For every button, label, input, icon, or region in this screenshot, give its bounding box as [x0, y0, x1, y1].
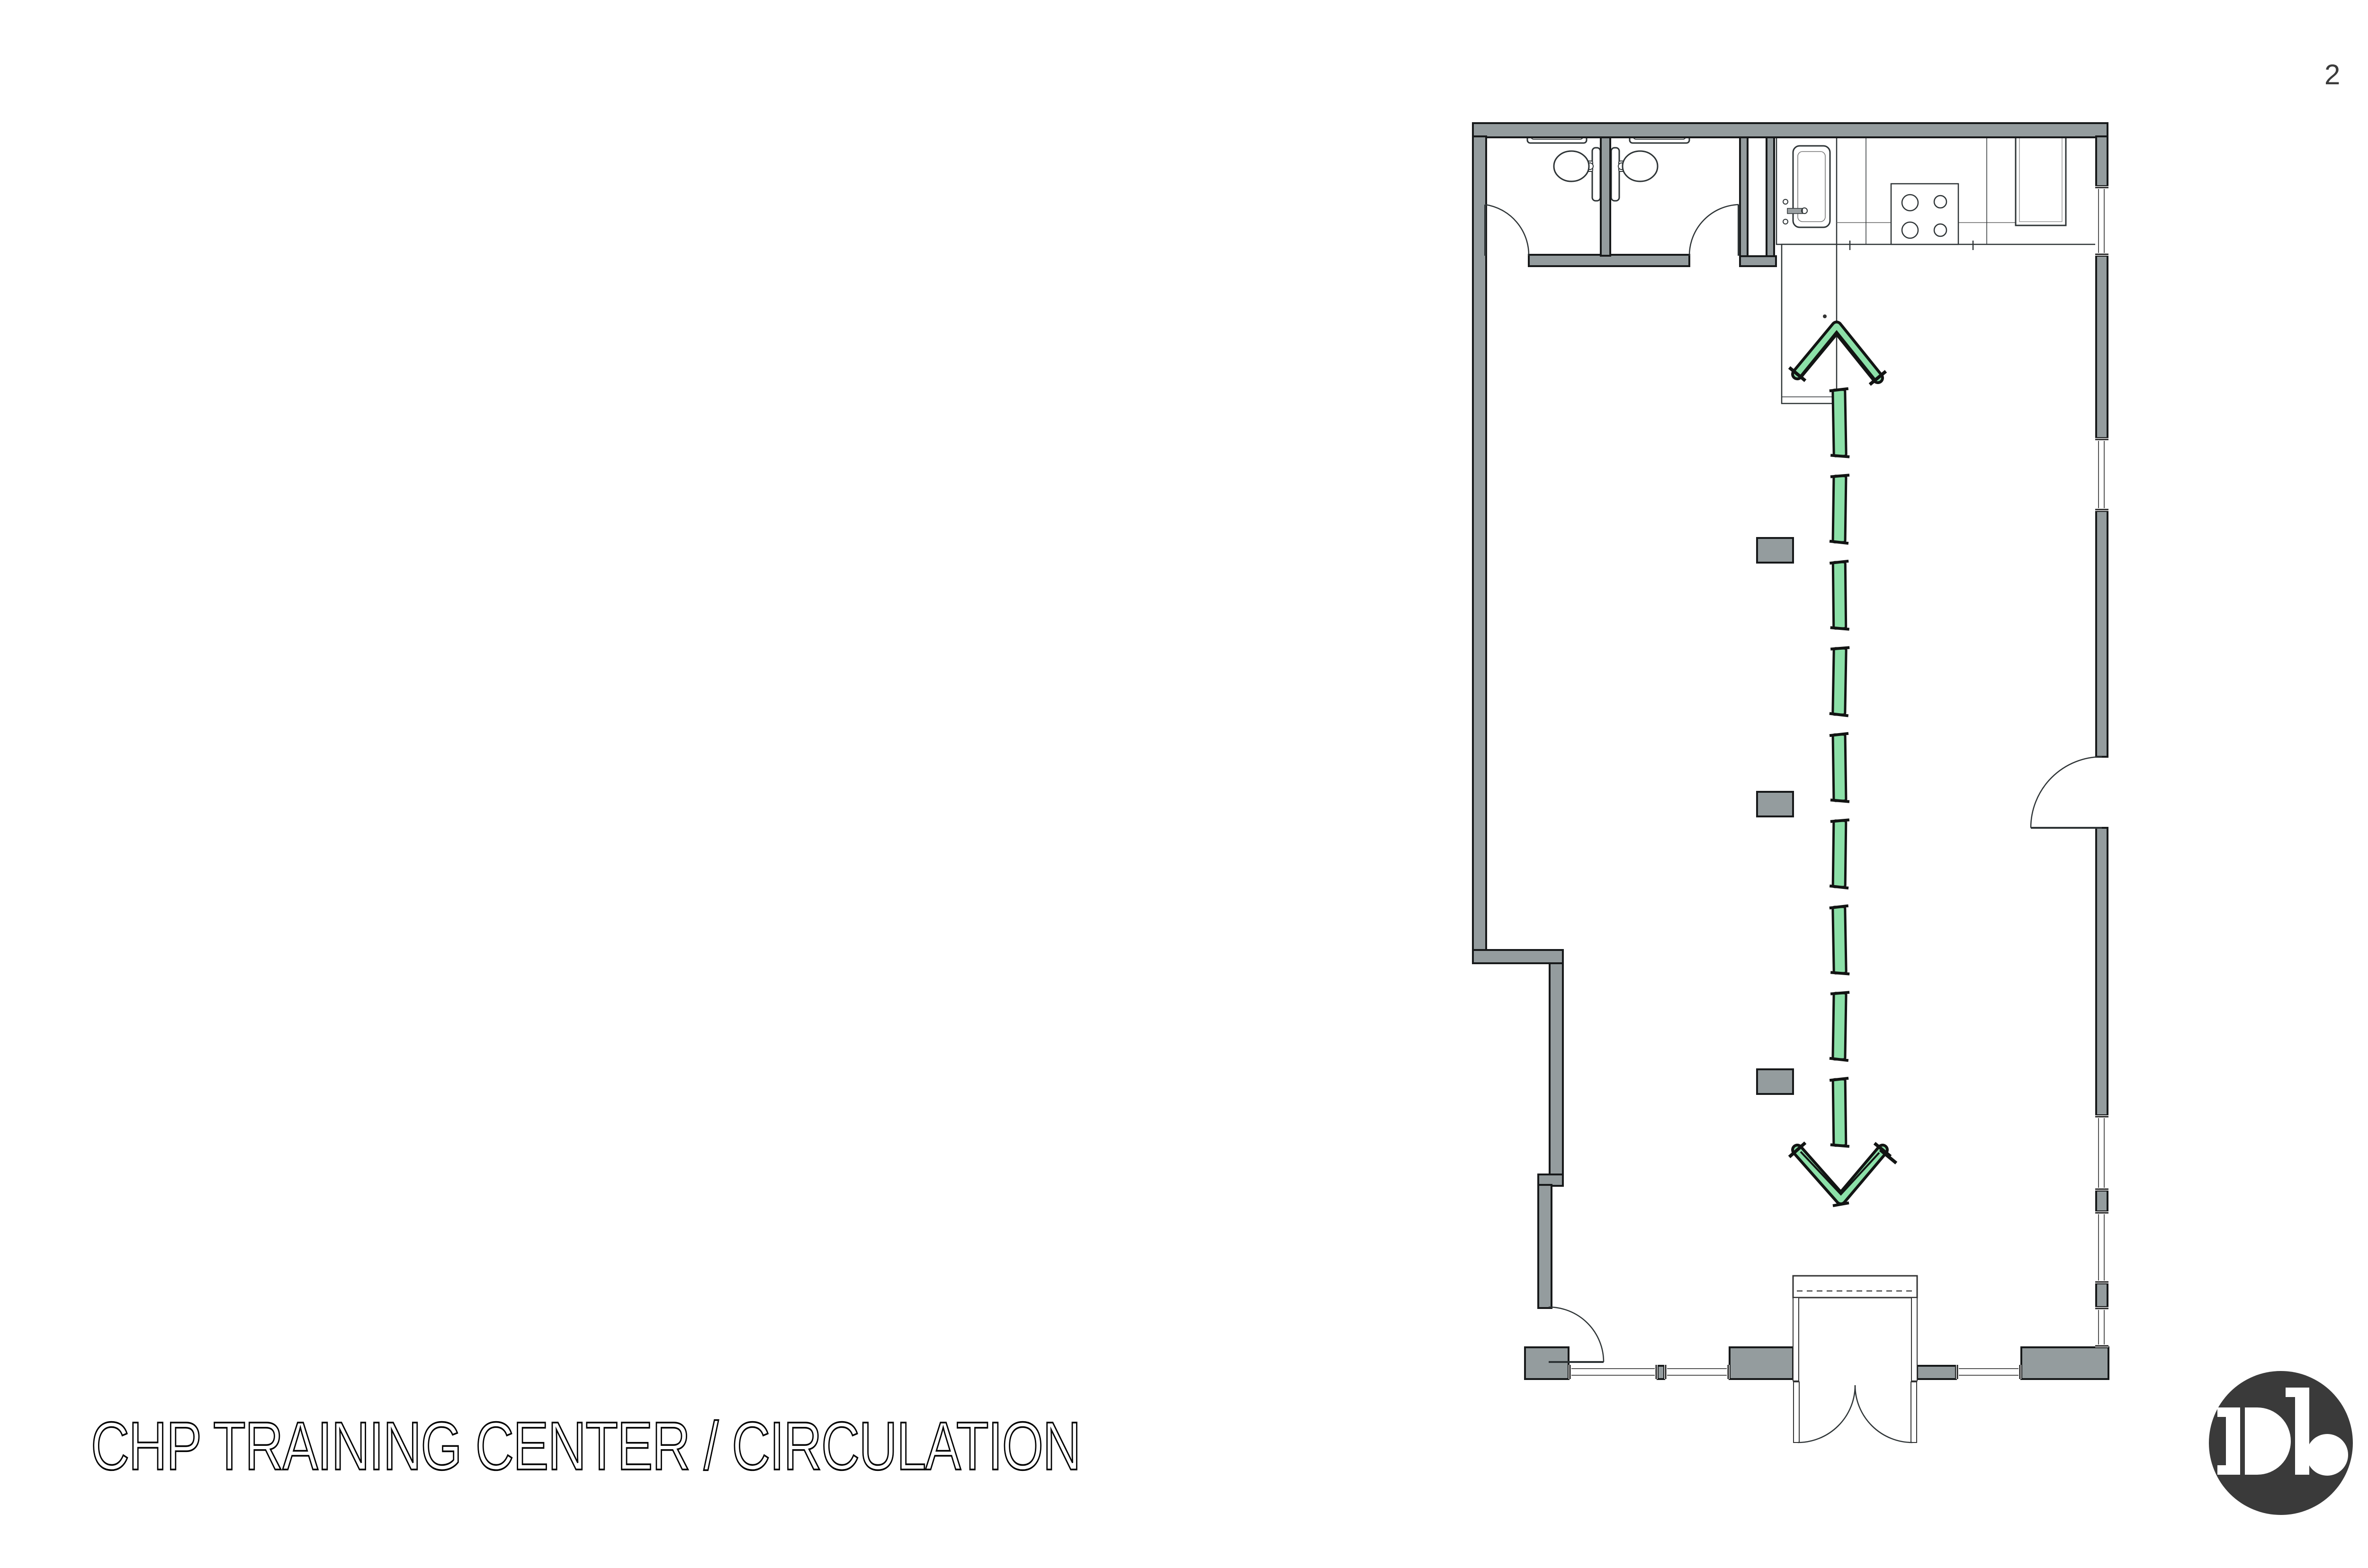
window-icon	[2095, 438, 2108, 511]
window-icon	[2095, 186, 2108, 256]
stove-icon	[1891, 184, 1958, 244]
kitchen-counter	[1776, 137, 1837, 244]
window-icon	[1664, 1365, 1730, 1379]
column-marker	[1757, 538, 1793, 563]
plan-annotation-dot	[1823, 314, 1827, 318]
window-icon	[2095, 1115, 2108, 1191]
door-swing-icon	[1485, 205, 1529, 256]
refrigerator-icon	[2016, 129, 2066, 225]
toilet-icon	[1611, 148, 1658, 201]
door-swing-icon	[1689, 205, 1739, 256]
wall-restroom-divider	[1601, 137, 1610, 256]
slide-canvas: 2 CHP TRAINING CENTER / CIRCULATION	[0, 0, 2368, 1568]
logo-mark	[2207, 1369, 2355, 1517]
arrow-dash	[1830, 389, 1850, 1147]
floor-plan	[0, 0, 2368, 1568]
entrance-vestibule	[1793, 1276, 1917, 1443]
window-icon	[2095, 1307, 2108, 1347]
window-icon	[2095, 1211, 2108, 1283]
wall-corridor-a	[1740, 137, 1748, 256]
double-door-icon	[1794, 1382, 1917, 1443]
kitchen-fixtures	[1776, 129, 2096, 403]
wall-top	[1473, 123, 2108, 137]
wall-corridor-b	[1767, 137, 1774, 256]
toilet-icon	[1554, 148, 1600, 201]
wall-right	[2096, 136, 2108, 186]
window-icon	[1569, 1365, 1658, 1379]
window-icon	[1956, 1365, 2021, 1379]
page-number: 2	[2324, 61, 2340, 89]
column-marker	[1757, 792, 1793, 816]
slide-title: CHP TRAINING CENTER / CIRCULATION	[91, 1412, 1080, 1480]
circulation-arrow	[1789, 327, 1896, 1206]
arrow-head-down-icon	[1789, 1143, 1896, 1206]
door-swing-icon	[2031, 757, 2102, 828]
wall-left	[1473, 136, 1486, 951]
column-marker	[1757, 1069, 1793, 1094]
